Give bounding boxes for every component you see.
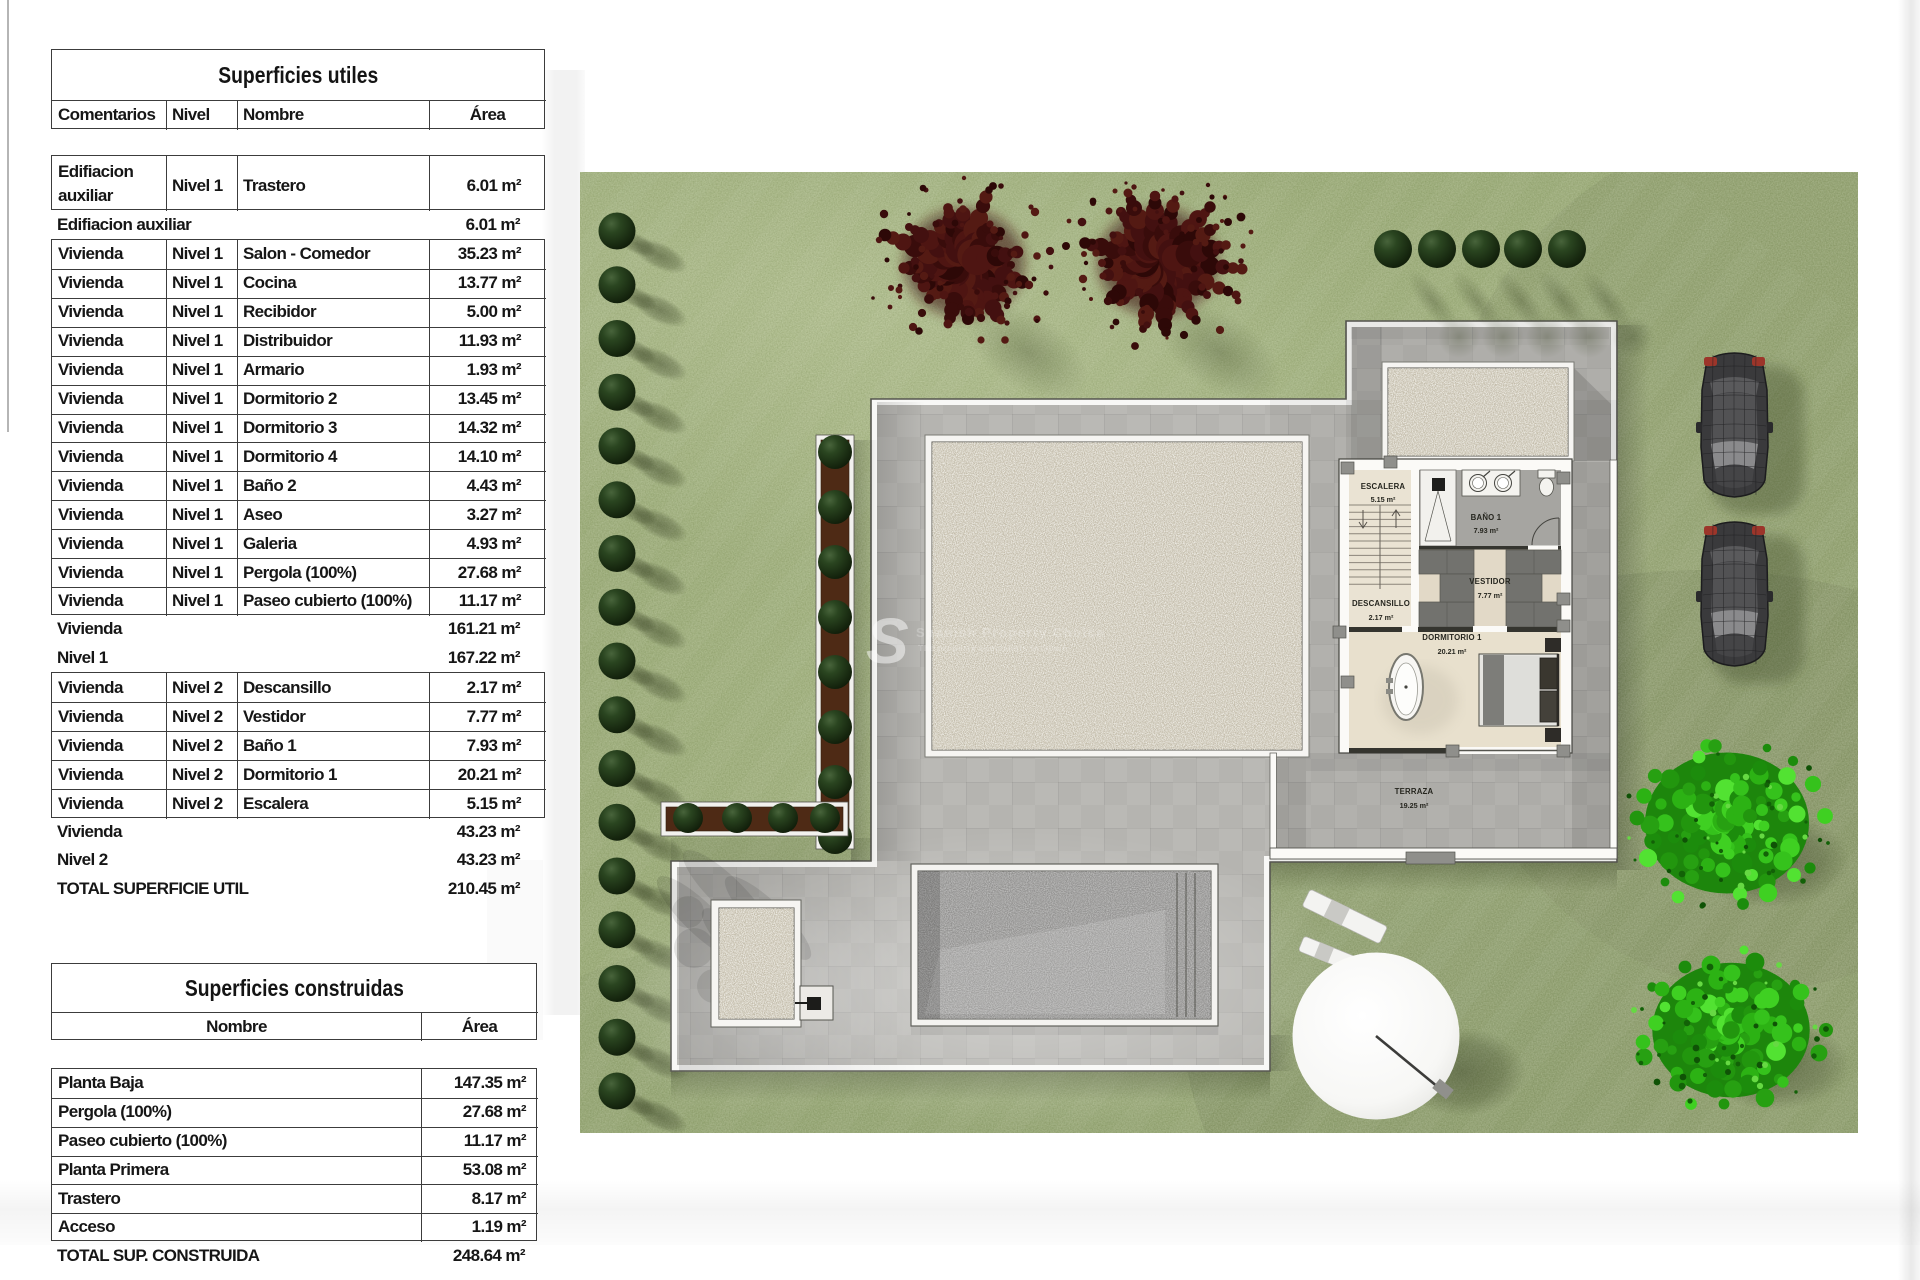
svg-text:2.17 m²: 2.17 m²: [1369, 613, 1394, 622]
svg-text:The property specialists in Sp: The property specialists in Spain: [918, 643, 1068, 653]
svg-text:5.15 m²: 5.15 m²: [1371, 495, 1396, 504]
svg-text:7.93 m²: 7.93 m²: [1474, 526, 1499, 535]
svg-text:ESCALERA: ESCALERA: [1361, 482, 1406, 491]
svg-text:DORMITORIO 1: DORMITORIO 1: [1422, 633, 1482, 642]
svg-text:20.21 m²: 20.21 m²: [1438, 647, 1467, 656]
svg-text:BAÑO 1: BAÑO 1: [1471, 513, 1502, 522]
svg-text:Spanish Property Choice: Spanish Property Choice: [916, 625, 1105, 640]
svg-text:S: S: [866, 605, 909, 677]
svg-text:7.77 m²: 7.77 m²: [1478, 591, 1503, 600]
svg-text:19.25 m²: 19.25 m²: [1400, 801, 1429, 810]
svg-text:DESCANSILLO: DESCANSILLO: [1352, 599, 1410, 608]
svg-text:VESTIDOR: VESTIDOR: [1469, 577, 1511, 586]
svg-text:TERRAZA: TERRAZA: [1395, 787, 1434, 796]
